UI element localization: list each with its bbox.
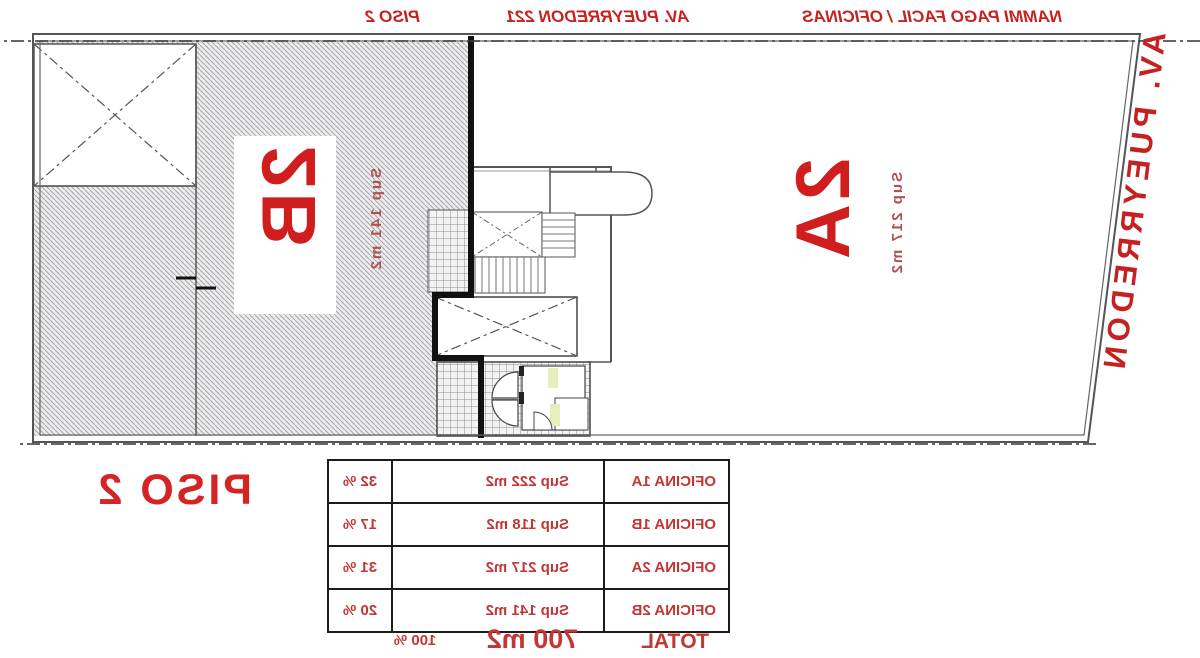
unit-2a-area: Sup 217 m2 <box>890 172 905 275</box>
balcony-shape <box>550 167 652 215</box>
floor-plan-drawing <box>0 0 1200 658</box>
unit-2b-label: 2B <box>252 146 328 251</box>
floor-plan-sheet: NAMMI PAGO FACIL / OFICINAS AV. PUEYRRED… <box>0 0 1200 658</box>
bathroom-block <box>437 362 590 436</box>
void-room-xbox <box>34 44 196 186</box>
elevator-xbox <box>472 212 542 257</box>
unit-2a-label: 2A <box>786 158 862 263</box>
unit-2b-area: Sup 141 m2 <box>369 168 384 271</box>
shaft-wall-hatch <box>428 210 472 292</box>
large-void-xbox <box>435 297 577 356</box>
